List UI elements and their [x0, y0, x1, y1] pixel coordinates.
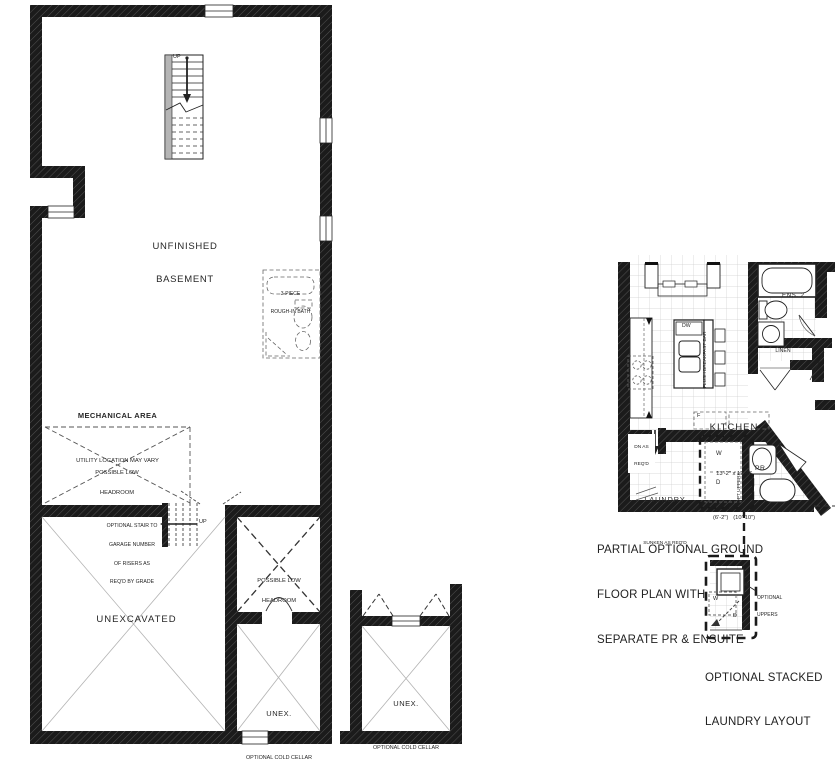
cold-cellar-title: UNEX.	[365, 700, 447, 709]
kitchen-name: KITCHEN	[694, 423, 774, 434]
optional-uppers-label: OPTIONAL UPPERS	[757, 584, 782, 625]
washer-label: W	[716, 451, 722, 458]
kitchen-island	[674, 320, 725, 388]
low-headroom-2-label: POSSIBLE LOW HEADROOM	[246, 565, 312, 611]
garage-stair-note-line: OPTIONAL STAIR TO	[100, 523, 164, 529]
garage-stair-note-line: OF RISERS AS	[100, 561, 164, 567]
caption-line: LAUNDRY LAYOUT	[705, 715, 823, 730]
window	[205, 5, 233, 17]
sink-basin	[296, 332, 311, 351]
cold-cellar-c-label: UNEX. OPTIONAL COLD CELLAR WHERE GRADE P…	[238, 673, 320, 768]
low-headroom-line: HEADROOM	[85, 490, 149, 497]
garage-stair-note-label: OPTIONAL STAIR TO GARAGE NUMBER OF RISER…	[100, 511, 164, 592]
sink-basin	[679, 357, 700, 372]
down-note-line: DN AS	[628, 445, 655, 451]
stair-up-label: UP	[173, 54, 181, 60]
low-headroom-line: POSSIBLE LOW	[246, 578, 312, 585]
unfinished-basement-label: UNFINISHED BASEMENT	[130, 219, 240, 296]
garage-stair-note-line: REQ'D BY GRADE	[100, 579, 164, 585]
toilet-bowl	[765, 301, 787, 319]
room-label-line: BASEMENT	[130, 274, 240, 285]
detail-dryer-label: D	[733, 613, 737, 619]
room-label-line: UNFINISHED	[130, 241, 240, 252]
linen-label: LINEN	[758, 349, 808, 355]
low-headroom-label: POSSIBLE LOW HEADROOM	[85, 457, 149, 503]
floorplan-sheet: UP UNFINISHED BASEMENT 3-PIECE ROUGH-IN …	[0, 0, 835, 768]
window	[320, 118, 332, 143]
bar-stool	[715, 329, 725, 342]
cold-cellar-title: UNEX.	[238, 710, 320, 719]
basement-stairs	[165, 55, 203, 159]
rough-in-bath-label: 3-PIECE ROUGH-IN BATH	[266, 279, 315, 321]
ground-floor-plan-caption: PARTIAL OPTIONAL GROUND FLOOR PLAN WITH …	[597, 513, 763, 663]
cellar-door-opening	[262, 612, 292, 624]
detail-washer-label: W	[713, 596, 718, 602]
bar-stool	[715, 351, 725, 364]
window	[320, 216, 332, 241]
cold-cellar-note: OPTIONAL COLD CELLAR	[238, 755, 320, 761]
garage-door-swing-dashes	[363, 594, 449, 616]
bar-stool	[715, 373, 725, 386]
stacked-laundry-caption: OPTIONAL STACKED LAUNDRY LAYOUT	[705, 642, 823, 744]
uppers-note-line: OPTIONAL	[757, 596, 782, 602]
basement-plan-caption: BASEMENT PLAN ELEVATION C	[34, 738, 133, 768]
caption-line: OPTIONAL STACKED	[705, 671, 823, 686]
sink-basin	[679, 341, 700, 356]
caption-line: FLOOR PLAN WITH	[597, 588, 763, 603]
unexcavated-label: UNEXCAVATED	[84, 615, 189, 626]
dishwasher-label: DW	[682, 324, 691, 330]
powder-room-label: PR	[755, 465, 765, 473]
caption-line: PARTIAL OPTIONAL GROUND	[597, 543, 763, 558]
sink-basin	[763, 326, 780, 343]
mechanical-title: MECHANICAL AREA	[55, 412, 180, 421]
uppers-note-line: UPPERS	[757, 613, 782, 619]
dryer-label: D	[716, 480, 720, 487]
bath-note-line: 3-PIECE	[266, 291, 315, 297]
garage-stair-note-line: GARAGE NUMBER	[100, 542, 164, 548]
partial-basement-plan-caption: PARTIAL BASEMENT PLAN ELEVATION D	[344, 738, 494, 768]
laundry-name: LAUNDRY	[630, 496, 700, 504]
fridge-label: F	[697, 413, 700, 419]
kitchen-counter-range	[628, 318, 653, 418]
window	[48, 206, 74, 218]
low-headroom-line: POSSIBLE LOW	[85, 470, 149, 477]
breakfast-bar-label: FLUSH BREAKFAST BAR	[703, 322, 709, 388]
bath-note-line: ROUGH-IN BATH	[266, 309, 315, 315]
garage-stair-up-label: UP	[199, 519, 207, 525]
opt-uppers-label: OPT UPPERS	[737, 447, 743, 503]
low-headroom-line: HEADROOM	[246, 598, 312, 605]
window	[392, 616, 420, 626]
ensuite-label: ENS. 2	[782, 292, 805, 299]
